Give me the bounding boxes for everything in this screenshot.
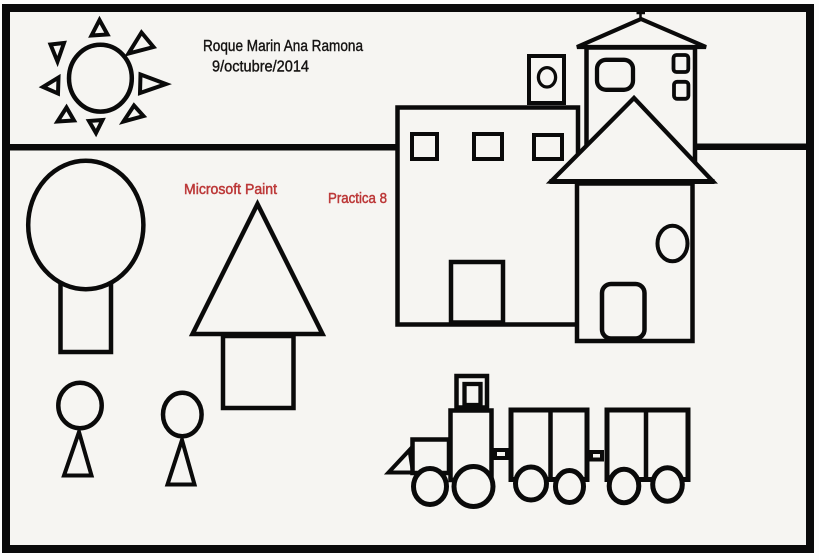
- svg-text:Practica 8: Practica 8: [328, 190, 387, 207]
- svg-text:9/octubre/2014: 9/octubre/2014: [212, 59, 309, 76]
- svg-text:Microsoft Paint: Microsoft Paint: [184, 181, 278, 198]
- svg-text:Roque Marin Ana Ramona: Roque Marin Ana Ramona: [203, 38, 363, 55]
